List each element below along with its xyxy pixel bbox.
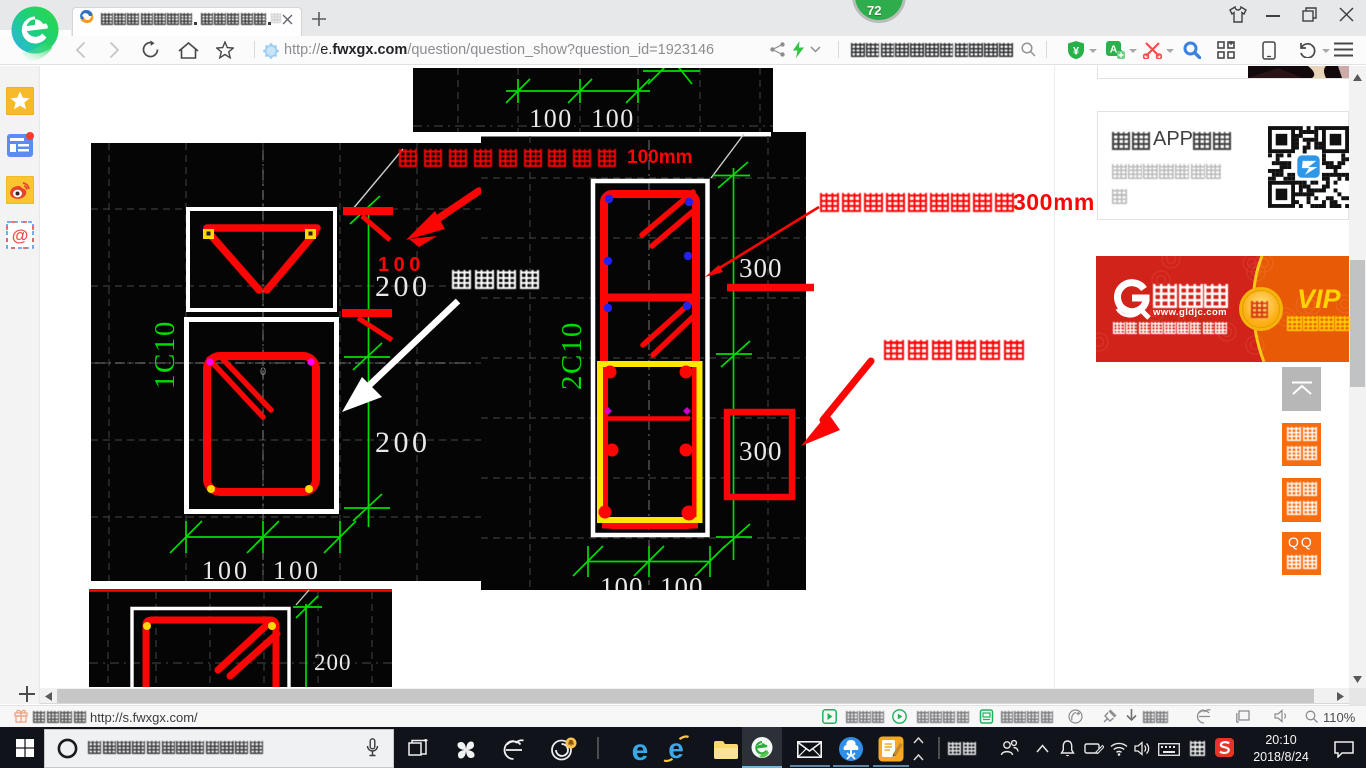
svg-text:e: e xyxy=(632,736,649,764)
svg-text:300: 300 xyxy=(739,436,783,466)
svg-text:@: @ xyxy=(12,226,29,245)
svg-text:A: A xyxy=(1110,44,1118,56)
svg-text:¥: ¥ xyxy=(1073,46,1080,58)
